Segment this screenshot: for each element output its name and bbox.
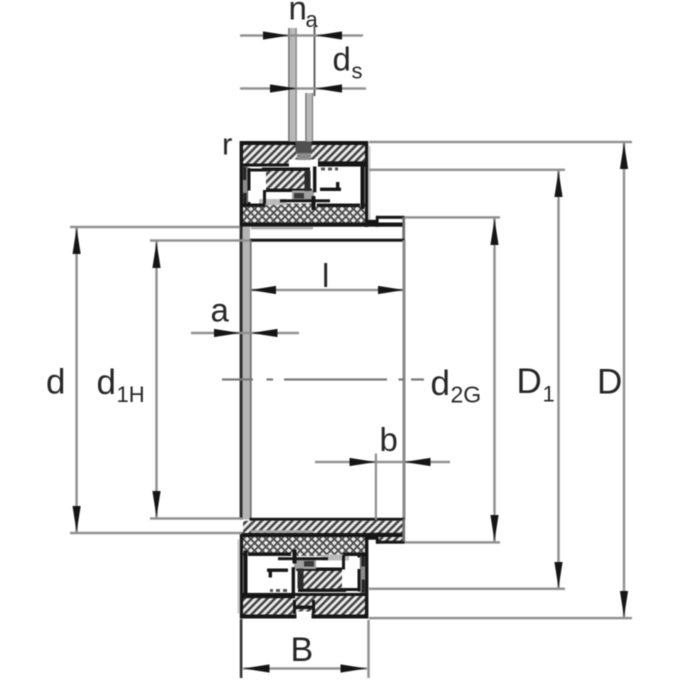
svg-text:1H: 1H <box>117 382 145 407</box>
svg-text:D: D <box>597 363 622 402</box>
svg-text:l: l <box>322 257 329 294</box>
svg-text:d: d <box>46 363 65 402</box>
svg-text:a: a <box>211 292 230 329</box>
svg-text:B: B <box>291 631 314 669</box>
svg-text:s: s <box>352 59 363 84</box>
svg-text:n: n <box>289 0 307 27</box>
svg-text:d: d <box>431 364 450 403</box>
svg-text:1: 1 <box>543 382 555 407</box>
svg-text:a: a <box>306 7 319 32</box>
svg-text:d: d <box>333 41 351 78</box>
svg-text:2G: 2G <box>451 382 482 408</box>
svg-text:b: b <box>380 421 398 458</box>
svg-text:d: d <box>97 363 116 402</box>
svg-text:D: D <box>517 362 542 401</box>
svg-text:r: r <box>222 127 232 162</box>
